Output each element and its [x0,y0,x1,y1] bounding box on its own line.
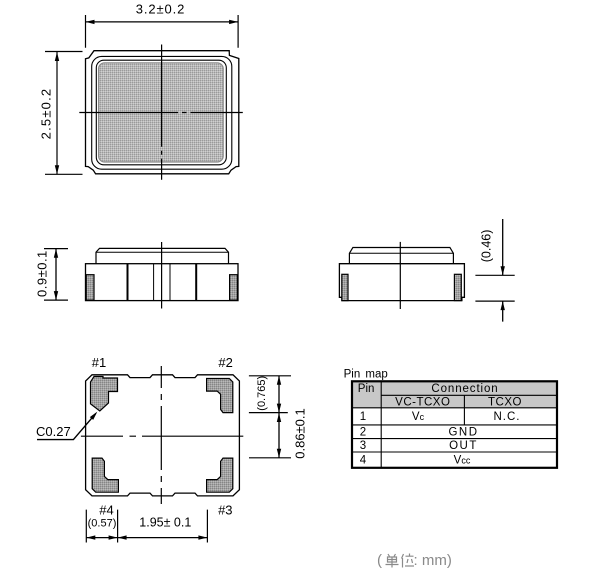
svg-text:0.86±0.1: 0.86±0.1 [293,408,308,459]
svg-text:2.5±0.2: 2.5±0.2 [39,88,54,140]
svg-text:#1: #1 [92,355,106,370]
svg-text:VC-TCXO: VC-TCXO [395,396,450,408]
svg-text:#3: #3 [218,503,232,518]
svg-text:1.95± 0.1: 1.95± 0.1 [139,516,191,530]
svg-text:TCXO: TCXO [488,396,522,408]
svg-text:(0.57): (0.57) [88,518,117,530]
svg-text:#2: #2 [218,355,232,370]
svg-text:2: 2 [360,427,366,439]
svg-text:Pin: Pin [358,383,375,395]
svg-text:(0.765): (0.765) [256,376,268,411]
svg-text:(: ( [377,552,382,569]
svg-text:Connection: Connection [431,383,498,395]
svg-text:Vc: Vc [412,411,425,423]
svg-text:3.2±0.2: 3.2±0.2 [136,2,186,17]
svg-text:: mm): : mm) [414,552,452,569]
svg-text:0.9±0.1: 0.9±0.1 [35,250,50,297]
svg-text:4: 4 [360,455,367,467]
svg-text:1: 1 [360,411,366,423]
svg-text:GND: GND [448,427,478,439]
svg-text:3: 3 [360,440,366,452]
svg-text:C0.27: C0.27 [36,424,71,439]
svg-text:(0.46): (0.46) [480,230,494,263]
svg-text:Vcc: Vcc [454,455,471,467]
svg-text:OUT: OUT [449,440,478,452]
svg-text:Pin map: Pin map [344,369,388,381]
svg-text:N.C.: N.C. [494,411,521,423]
svg-text:#4: #4 [99,503,113,518]
